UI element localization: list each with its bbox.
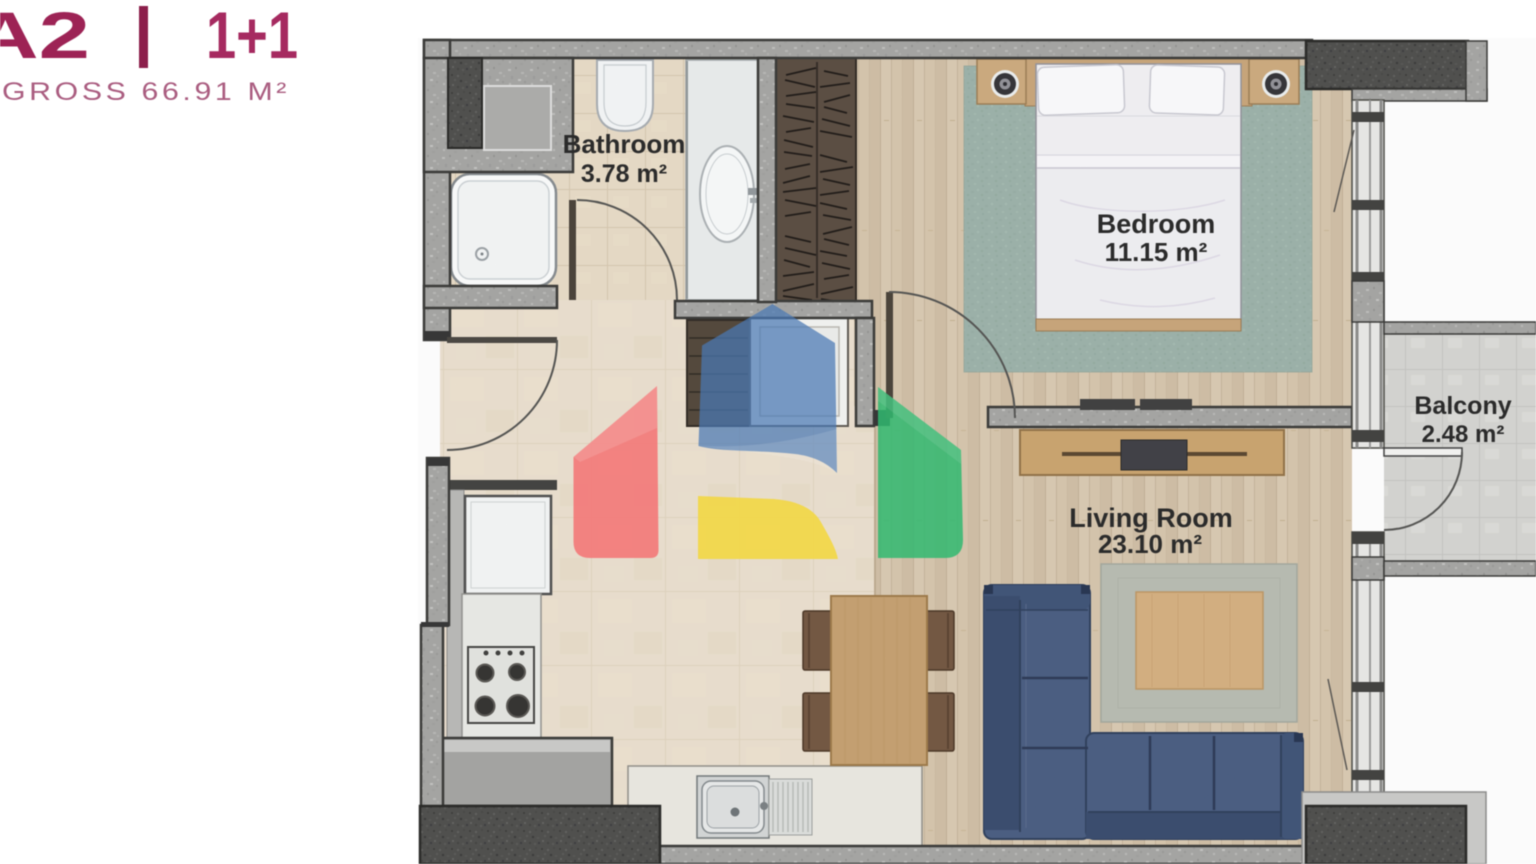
svg-text:GROSS 66.91 M²: GROSS 66.91 M² (2, 78, 290, 106)
svg-text:1+1: 1+1 (206, 0, 298, 72)
svg-text:A2: A2 (0, 0, 90, 72)
